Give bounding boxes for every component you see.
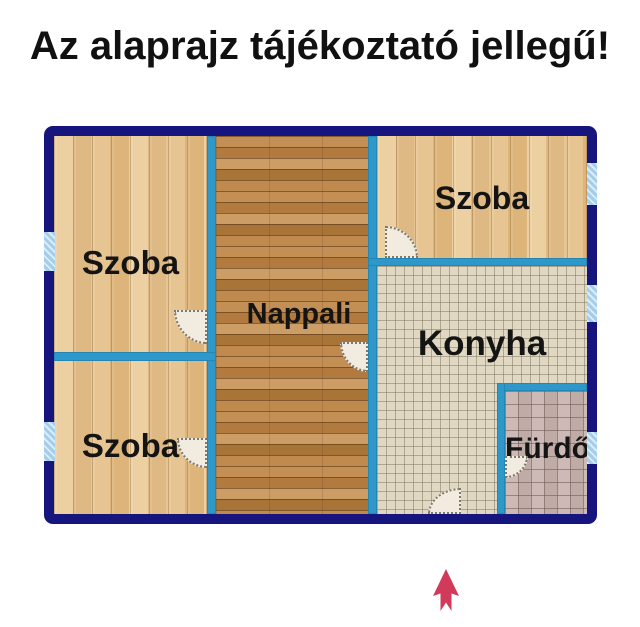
wall-szoba-konyha <box>368 258 587 266</box>
window-left-1 <box>44 232 55 271</box>
room-label: Nappali <box>216 300 368 329</box>
window-right-3 <box>587 432 597 464</box>
window-right-1 <box>587 163 597 205</box>
room-label: Szoba <box>54 246 207 279</box>
floor-plan-interior: Szoba Szoba Nappali Szoba Konyha Fürdő <box>54 136 587 514</box>
wall-furdo-top <box>497 383 587 391</box>
wall-szoba-szoba-divider <box>54 352 216 361</box>
wall-szoba-nappali <box>207 136 216 514</box>
floor-plan: Szoba Szoba Nappali Szoba Konyha Fürdő <box>44 126 597 524</box>
room-label: Konyha <box>377 326 587 361</box>
page-title: Az alaprajz tájékoztató jellegű! <box>0 24 640 69</box>
wall-furdo-left <box>497 383 505 514</box>
wall-nappali-konyha <box>368 136 377 514</box>
floor-plan-page: Az alaprajz tájékoztató jellegű! Szoba S… <box>0 0 640 627</box>
room-nappali: Nappali <box>216 136 368 514</box>
room-label: Szoba <box>377 182 587 214</box>
room-furdo: Fürdő <box>505 391 587 514</box>
north-arrow-icon <box>432 568 460 613</box>
window-left-2 <box>44 422 55 461</box>
window-right-2 <box>587 285 597 322</box>
